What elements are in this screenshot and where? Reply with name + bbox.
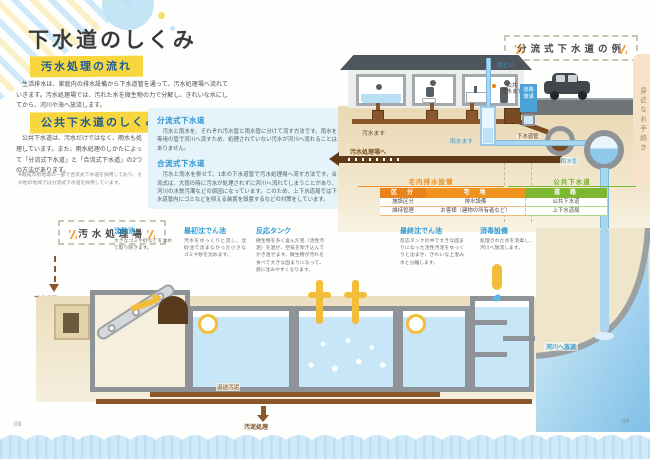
inlet-opening (63, 313, 79, 333)
bathtub-water (361, 94, 401, 103)
stage-name: 沈砂池 (114, 226, 172, 236)
to-treatment-plant-label: 汚水処理場へ (350, 147, 386, 156)
water-wave-footer (0, 428, 650, 459)
tank-water (475, 307, 529, 387)
car-window (568, 75, 577, 82)
side-tab: 身近なお手続き (633, 54, 650, 186)
road-gutter-box (522, 114, 535, 126)
rainwater-basin-label: 雨水ます (450, 136, 473, 145)
separate-system-body: 汚水と雨水を、それぞれ汚水管と雨水管に分けて流す方法です。雨水を専用の管で河川へ… (157, 128, 337, 153)
stage-disinfection: 消毒設備 処理された水を消毒し、河川へ放流します。 (480, 226, 534, 252)
rain-pipe-label: 雨水管 (560, 157, 578, 165)
stage-description: 汚水をゆっくりと流し、沈砂池で沈まなかった小さなゴミや砂を沈めます。 (184, 238, 246, 260)
sludge-pipe (96, 399, 532, 404)
stage-name: 最初沈でん池 (184, 226, 246, 236)
stage-name: 消毒設備 (480, 226, 534, 236)
wave-shape (0, 435, 650, 459)
screw-segment (106, 322, 117, 333)
chlorine-dropper (492, 264, 502, 290)
splash (594, 332, 614, 340)
sewage-flow-paragraph: 生活排水は、家庭内の排水設備から下水道管を通って、汚水処理場へ流れていきます。汚… (16, 80, 228, 112)
rainwater-basin-water (483, 128, 493, 143)
sewer-types-box: 分流式下水道 汚水と雨水を、それぞれ汚水管と雨水管に分けて流す方法です。雨水を専… (148, 108, 346, 209)
table-cell: 施設区分 (380, 198, 426, 207)
rain-pipe-horizontal (496, 140, 586, 146)
stage-reaction-tank: 反応タンク 微生物を多く含んだ泥（活性汚泥）を混ぜ、空気を吹き込んでかき混ぜます… (256, 226, 324, 274)
table-header-road: 道 路 (525, 188, 607, 198)
brochure-spread: 下水道のしくみ 汚水処理の流れ 生活排水は、家庭内の排水設備から下水道管を通って… (0, 0, 650, 459)
discharge-label: 河川へ放流 (544, 342, 578, 351)
disinfection-baffle (475, 352, 507, 357)
combined-system-body: 汚水と雨水を併せて、1本の下水道管で汚水処理場へ流す方法です。合流式は、大雨の時… (157, 171, 337, 205)
table-cell: お客様（建物の所有者など） (426, 207, 525, 216)
example-title-box: 分流式下水道の例 (504, 35, 638, 61)
road-gutter-label: 道路 側溝 (520, 84, 537, 112)
right-page-number: 04 (622, 418, 629, 425)
sewage-basin-label: 汚水ます (362, 128, 385, 137)
private-span-label: 宅内排水設備 (358, 176, 504, 186)
person-body (426, 87, 434, 97)
disinfection-baffle (503, 336, 535, 341)
table-cell: 排水設備 (426, 198, 525, 207)
river-illustration (536, 228, 650, 432)
downspout-pipe (486, 58, 491, 106)
example-title: 分流式下水道の例 (517, 41, 625, 55)
public-span-line (508, 186, 636, 187)
inlet-arrow (54, 256, 56, 282)
stage-primary-sedimentation: 最初沈でん池 汚水をゆっくりと流し、沈砂池で沈まなかった小さなゴミや砂を沈めます… (184, 226, 246, 260)
flow-direction-dashes (348, 158, 400, 161)
car-window (556, 75, 565, 82)
dot-decoration (158, 12, 165, 19)
stage-name: 最終沈でん池 (400, 226, 464, 236)
public-sewer-note: ※既成市街地等の一部で合流式下水道を採用しており、その他の地域では分流式下水道を… (18, 172, 142, 187)
public-sewer-paragraph: 公共下水道は、汚水だけではなく、雨水も処理しています。また、雨水処理のしかたによ… (16, 134, 142, 177)
person-on-toilet (430, 80, 436, 86)
car-wheel (550, 91, 559, 100)
combined-system-title: 合流式下水道 (157, 158, 337, 169)
car-wheel (578, 91, 587, 100)
page-title: 下水道のしくみ (28, 24, 197, 54)
stage-final-sedimentation: 最終沈でん池 反応タンクの中で大きな固まりになった活性汚泥をゆっくりと沈ませ、き… (400, 226, 464, 267)
public-span-label: 公共下水道 (508, 176, 636, 186)
disinfection-baffle (475, 320, 507, 325)
sludge-arrowhead-icon (257, 415, 269, 422)
stage-description: 処理された水を消毒し、河川へ放流します。 (480, 238, 534, 252)
stage-description: 反応タンクの中で大きな固まりになった活性汚泥をゆっくりと沈ませ、きれいな上澄み水… (400, 238, 464, 267)
road-surface (520, 98, 650, 115)
table-cell: 維持管理 (380, 207, 426, 216)
stage-description: 微生物を多く含んだ泥（活性汚泥）を混ぜ、空気を吹き込んでかき混ぜます。微生物が汚… (256, 238, 324, 274)
private-span-line (358, 186, 504, 187)
stage-description: 大きなゴミや砂などを沈めて取り除きます。 (114, 238, 172, 252)
person-in-bath (376, 84, 382, 90)
separate-system-title: 分流式下水道 (157, 115, 337, 126)
return-sludge-label: 返送汚泥 (216, 383, 240, 391)
aeration-bubbles (300, 316, 392, 386)
left-page-number: 03 (14, 421, 21, 428)
table-column-divider (525, 198, 526, 216)
return-sludge-pipe (150, 392, 440, 397)
grit-hopper (158, 296, 188, 324)
scraper-drive-wheel (406, 314, 426, 334)
table-header-private: 宅 地 (426, 188, 525, 198)
heading-sewage-flow: 汚水処理の流れ (30, 56, 143, 78)
aerator-mixer-arm (344, 292, 367, 298)
rain-gutter-label: 雨どい (497, 60, 514, 69)
disinfection-tank (470, 296, 534, 392)
discharge-pipe (600, 228, 609, 332)
flow-arrow-icon (329, 152, 339, 166)
table-header-category: 区 分 (380, 188, 426, 198)
stage-name: 反応タンク (256, 226, 324, 236)
sewer-pipe-label: 下水道管 (516, 132, 540, 140)
aerator-mixer-arm (308, 292, 331, 298)
stage-grit-chamber: 沈砂池 大きなゴミや砂などを沈めて取り除きます。 (114, 226, 172, 252)
inlet-arrowhead-icon (49, 284, 59, 292)
table-cell: 公共下水道 (525, 198, 607, 207)
rain-pipe-cross-section (584, 130, 624, 170)
table-cell: 上下水道局 (525, 207, 607, 216)
faucet-icon (474, 86, 477, 93)
sludge-arrow (261, 406, 266, 415)
scraper-drive-wheel (198, 314, 218, 334)
